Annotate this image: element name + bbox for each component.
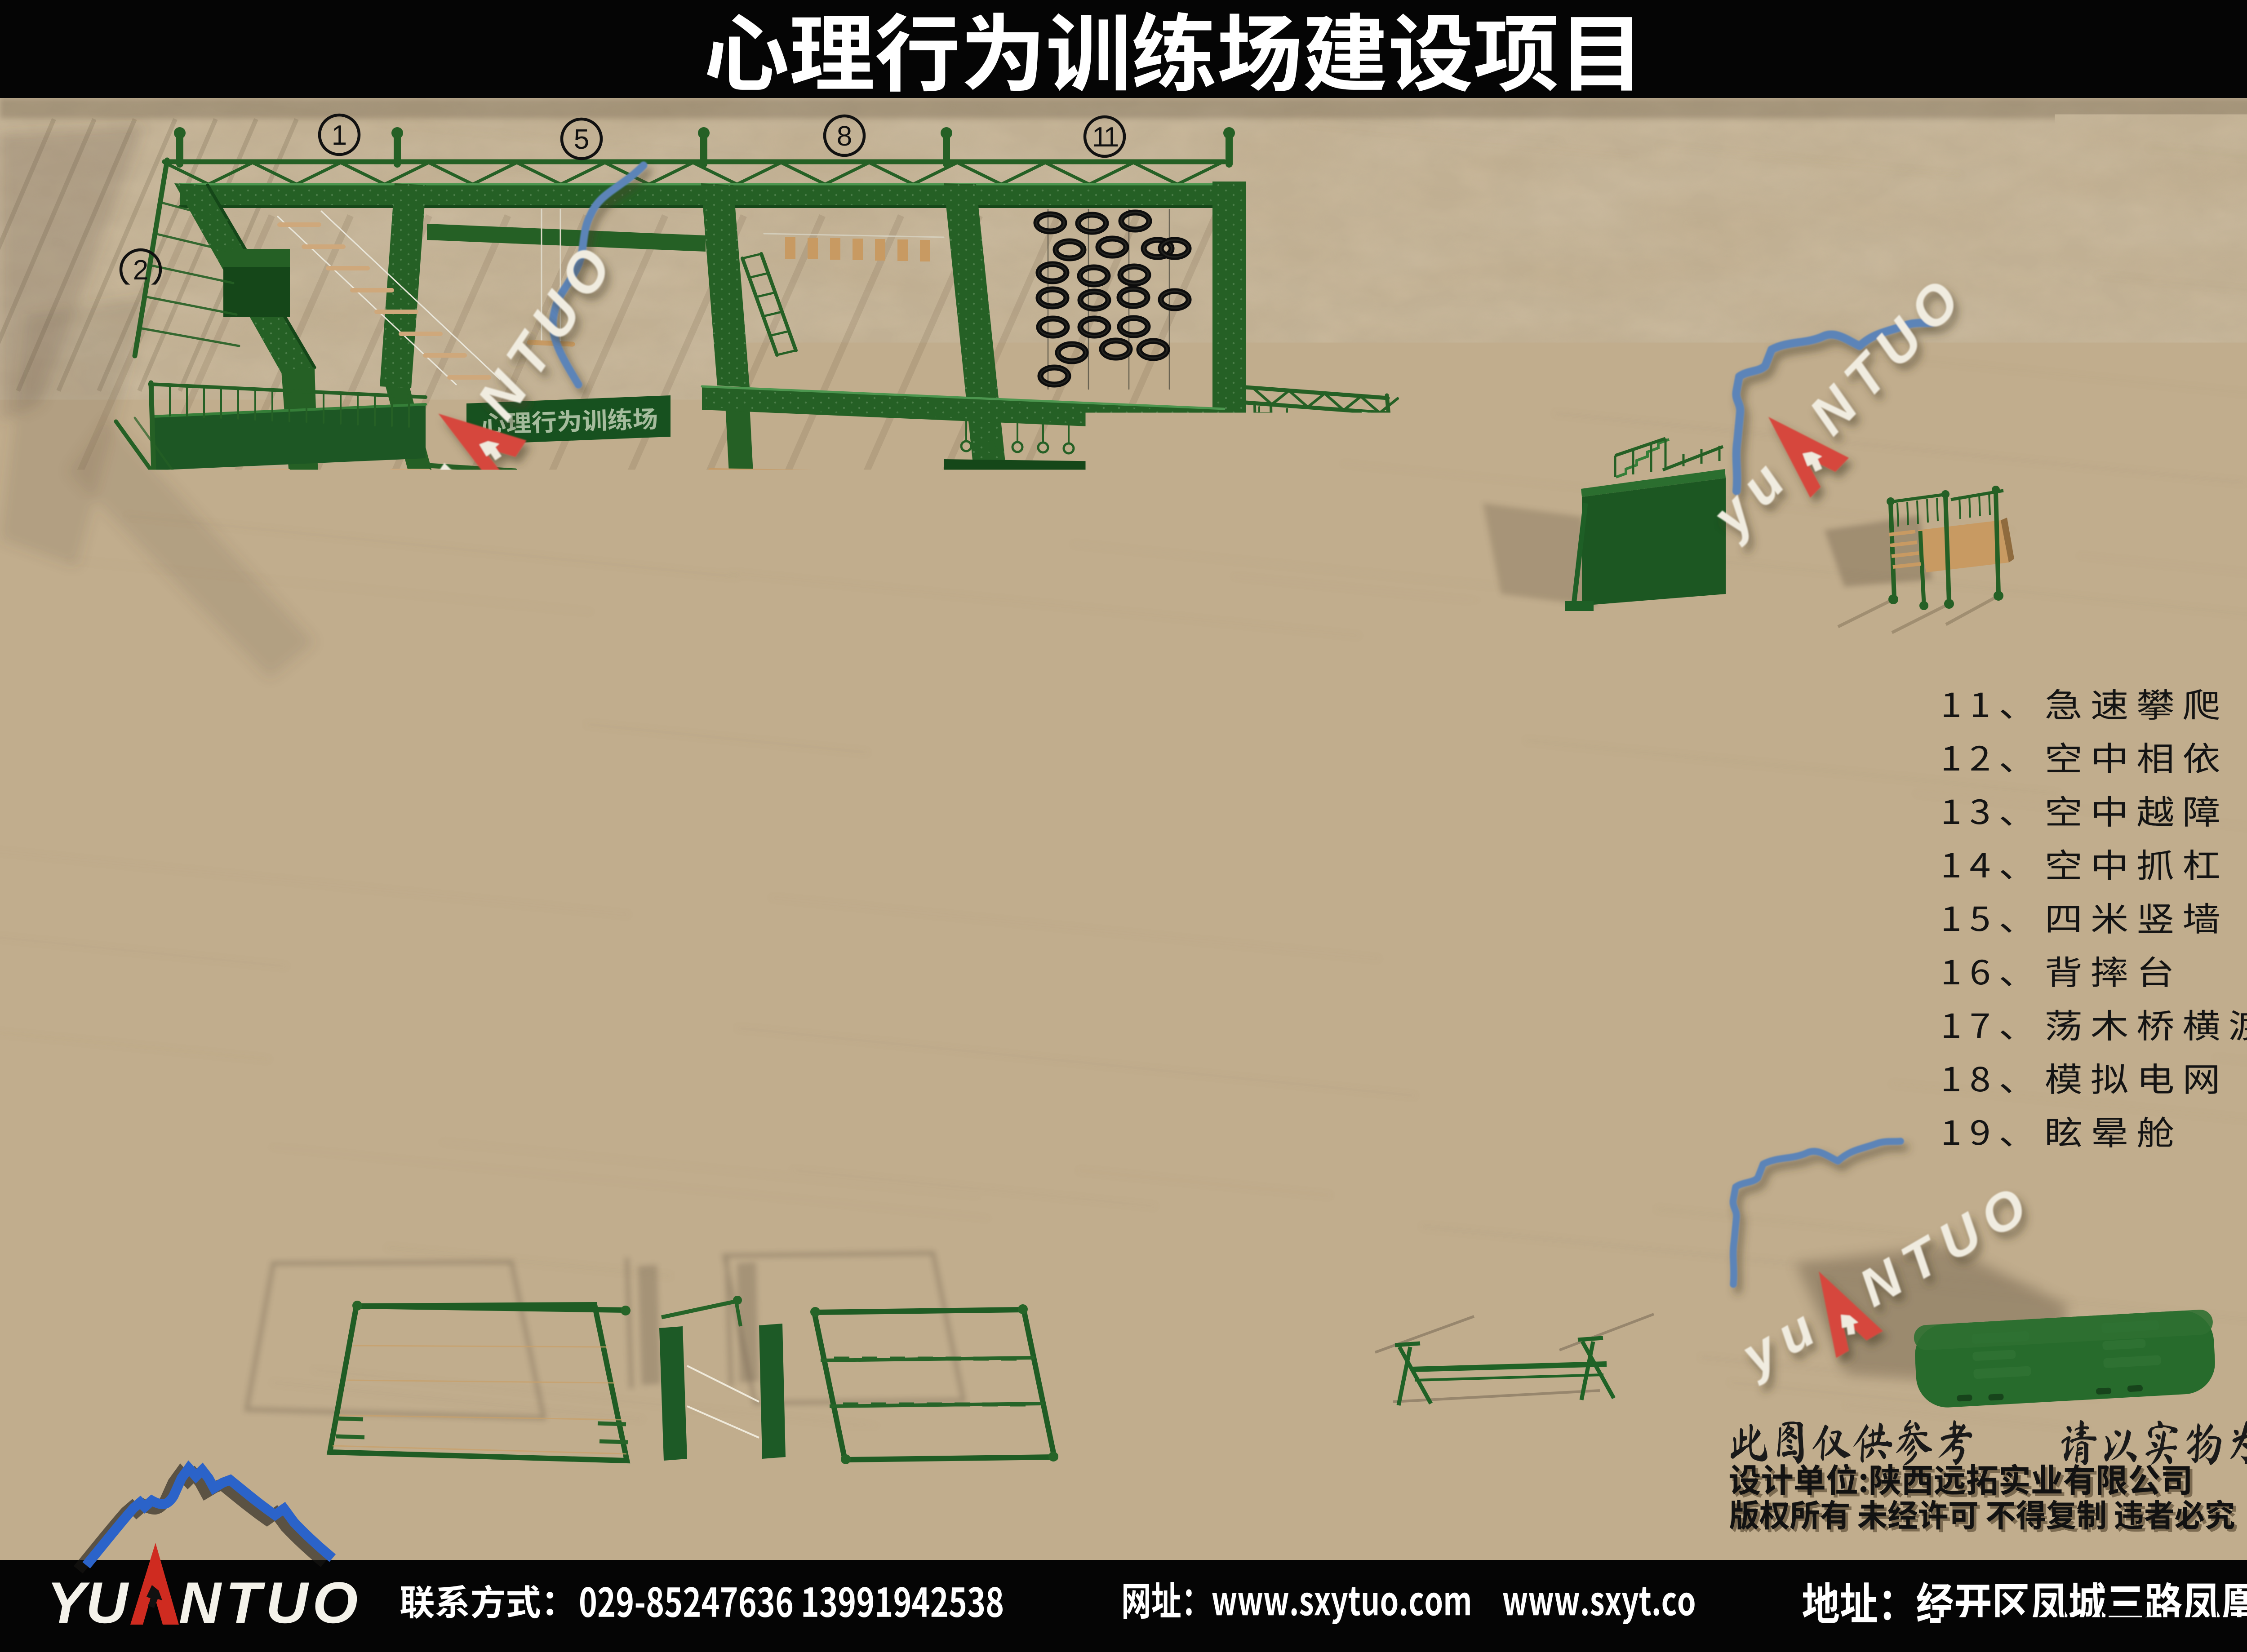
svg-text:NTUO: NTUO xyxy=(179,1570,362,1635)
svg-text:12: 12 xyxy=(1249,290,1277,321)
svg-text:18: 18 xyxy=(1473,1325,1501,1356)
svg-text:YU: YU xyxy=(47,1570,129,1635)
svg-text:5: 5 xyxy=(574,124,589,155)
svg-text:6: 6 xyxy=(666,285,681,316)
svg-text:3: 3 xyxy=(347,482,363,513)
svg-text:7: 7 xyxy=(585,495,600,526)
svg-text:1: 1 xyxy=(332,120,347,151)
svg-text:2: 2 xyxy=(133,255,148,286)
svg-text:11: 11 xyxy=(1092,122,1118,153)
svg-text:9: 9 xyxy=(916,290,932,321)
svg-text:17: 17 xyxy=(666,1260,694,1291)
svg-text:4: 4 xyxy=(472,306,488,337)
svg-text:16: 16 xyxy=(2012,536,2039,567)
svg-text:13: 13 xyxy=(1094,440,1122,471)
svg-text:15: 15 xyxy=(1719,562,1746,593)
svg-text:14: 14 xyxy=(1388,425,1417,456)
svg-text:19: 19 xyxy=(2074,1278,2102,1309)
svg-text:10: 10 xyxy=(839,446,868,477)
svg-text:8: 8 xyxy=(837,121,852,152)
